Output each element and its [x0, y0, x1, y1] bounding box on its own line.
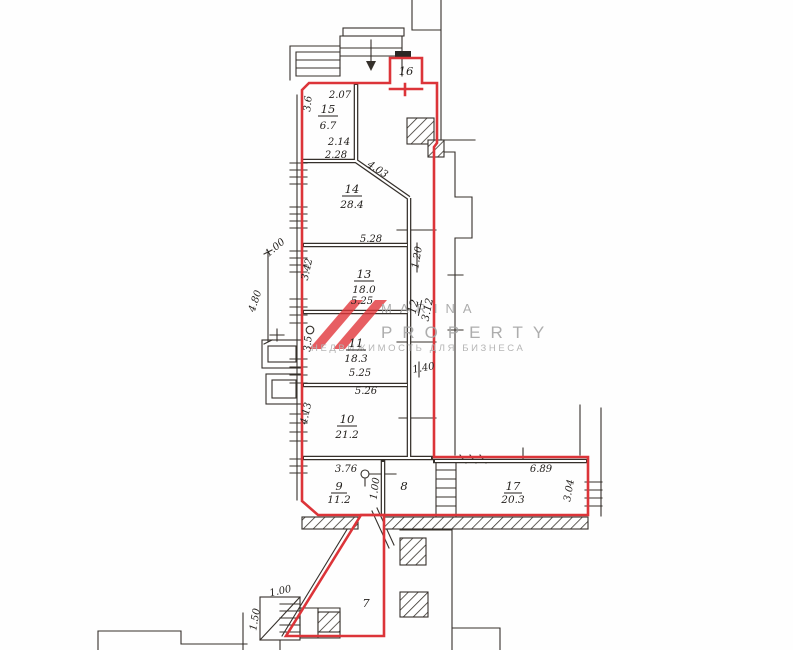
watermark-brand-bottom: PROPERTY [381, 323, 554, 342]
dim-1-20: 1.20 [410, 245, 425, 269]
floor-plan-svg: MARINA PROPERTY НЕДВИЖИМОСТЬ ДЛЯ БИЗНЕСА… [0, 0, 793, 650]
dim-2-14: 2.14 [327, 137, 350, 148]
room13-area: 18.0 [352, 284, 376, 296]
boundary-main [302, 58, 588, 515]
room17-number: 17 [506, 479, 521, 493]
dim-4-80: 4.80 [247, 288, 265, 314]
dim-2-07: 2.07 [328, 90, 352, 101]
room13-number: 13 [357, 267, 372, 281]
room14-area: 28.4 [339, 199, 363, 211]
room9-area: 11.2 [327, 494, 351, 506]
floor-plan-image: MARINA PROPERTY НЕДВИЖИМОСТЬ ДЛЯ БИЗНЕСА… [0, 0, 793, 650]
boundary-room16-bottom [390, 84, 422, 95]
dim-5-28: 5.28 [360, 234, 382, 245]
dim-3-76: 3.76 [335, 464, 358, 475]
dim-1-00-left: 1.00 [263, 236, 288, 259]
dim-1-00-door: 1.00 [369, 476, 383, 500]
room10-number: 10 [340, 412, 355, 426]
watermark-tagline: НЕДВИЖИМОСТЬ ДЛЯ БИЗНЕСА [311, 343, 525, 354]
dim-2-28: 2.28 [324, 150, 347, 161]
room15-area: 6.7 [320, 120, 337, 132]
dim-3-5: 3.5 [302, 335, 314, 352]
dim-5-25b: 5.25 [349, 368, 371, 379]
dim-5-26: 5.26 [355, 386, 378, 397]
room11-number: 11 [349, 336, 364, 350]
room7-number: 7 [362, 596, 370, 610]
dim-6-89: 6.89 [530, 464, 553, 475]
room10-area: 21.2 [334, 429, 359, 441]
dim-3-04: 3.04 [562, 479, 577, 503]
dim-1-40: 1.40 [412, 361, 436, 376]
room17-area: 20.3 [500, 494, 525, 506]
dim-5-25a: 5.25 [351, 296, 373, 307]
room14-number: 14 [345, 182, 360, 196]
room11-area: 18.3 [344, 353, 368, 365]
room9-number: 9 [335, 479, 342, 493]
room16-number: 16 [399, 64, 414, 78]
dim-3-6: 3.6 [302, 95, 314, 112]
dim-1-50-stairs: 1.50 [248, 607, 263, 631]
room15-number: 15 [321, 102, 336, 116]
room8-number: 8 [400, 479, 407, 493]
